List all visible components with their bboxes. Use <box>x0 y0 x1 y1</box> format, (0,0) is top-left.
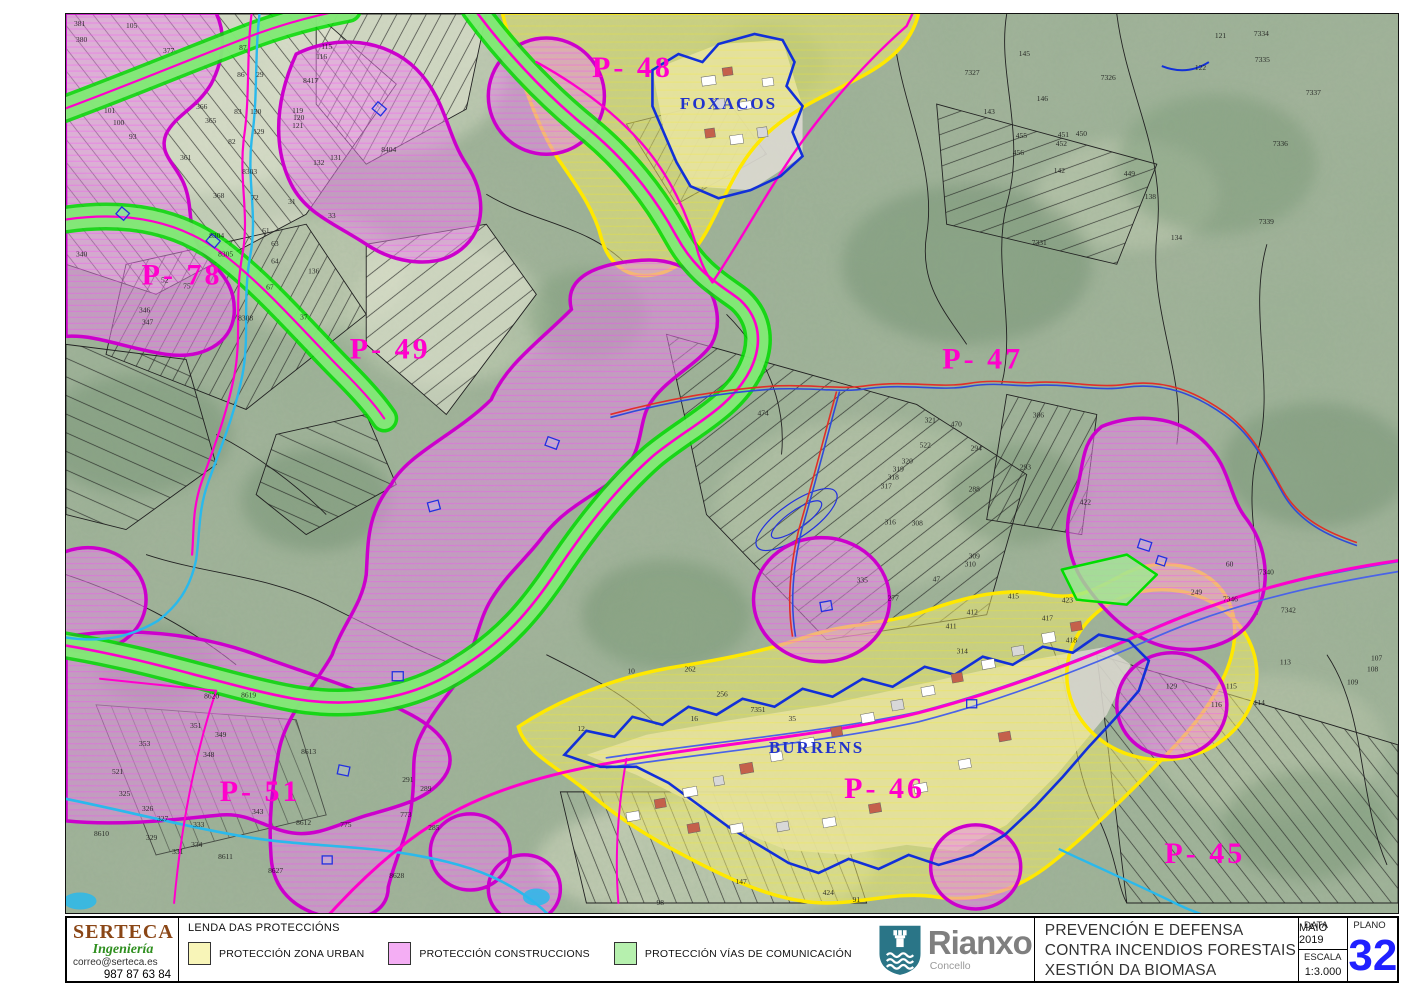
parcel-number: 8620 <box>204 692 219 701</box>
parcel-number: 129 <box>1166 682 1177 691</box>
parcel-number: 449 <box>1124 169 1135 178</box>
parcel-number: 417 <box>1042 614 1053 623</box>
parcel-number: 147 <box>736 877 747 886</box>
region-label: FOXACOS <box>680 94 777 113</box>
map-canvas: 3813801053771011009387298683130129823653… <box>66 14 1398 913</box>
parcel-number: 349 <box>215 730 226 739</box>
parcel-number: 60 <box>1226 560 1234 569</box>
plano-box: PLANO 32 <box>1347 918 1397 981</box>
parcel-number: 61 <box>262 226 270 235</box>
parcel-number: 262 <box>684 665 695 674</box>
parcel-number: 134 <box>1171 233 1182 242</box>
parcel-number: 7346 <box>1223 595 1238 604</box>
parcel-number: 256 <box>716 690 727 699</box>
parcel-number: 452 <box>1056 139 1067 148</box>
data-row: DATA MAIO 2019 <box>1299 918 1347 950</box>
parcel-number: 143 <box>984 107 995 116</box>
parcel-number: 87 <box>239 43 247 52</box>
parcel-number: 132 <box>313 158 324 167</box>
region-label: BURRENS <box>769 738 864 757</box>
parcel-number: 318 <box>888 473 899 482</box>
legend-label: PROTECCIÓN ZONA URBAN <box>219 948 364 960</box>
parcel-number: 316 <box>885 518 896 527</box>
parcel-number: 325 <box>119 789 130 798</box>
parcel-number: 8619 <box>241 691 256 700</box>
parcel-number: 365 <box>205 116 216 125</box>
parcel-number: 105 <box>126 21 137 30</box>
legend: LENDA DAS PROTECCIÓNS PROTECCIÓN ZONA UR… <box>179 918 876 981</box>
parcel-number: 415 <box>1008 592 1019 601</box>
parcel-number: 91 <box>853 895 861 904</box>
parcel-number: 293 <box>1020 463 1031 472</box>
parcel-number: 456 <box>1013 148 1024 157</box>
plan-sheet: 3813801053771011009387298683130129823653… <box>0 0 1414 1000</box>
parcel-number: 418 <box>1066 636 1077 645</box>
project-title-line1: PREVENCIÓN E DEFENSA <box>1045 921 1296 941</box>
legend-item: PROTECCIÓN ZONA URBAN <box>188 942 364 965</box>
parcel-number: 455 <box>1016 131 1027 140</box>
rianxo-shield-icon <box>878 924 922 976</box>
parcel-number: 348 <box>203 750 214 759</box>
parcel-number: 317 <box>881 482 892 491</box>
legend-title: LENDA DAS PROTECCIÓNS <box>188 922 876 934</box>
parcel-number: 29 <box>256 70 264 79</box>
parcel-number: 72 <box>251 193 259 202</box>
parcel-number: 380 <box>76 35 87 44</box>
parcel-number: 108 <box>1367 665 1378 674</box>
region-label: P- 46 <box>844 772 925 805</box>
parcel-number: 249 <box>1191 588 1202 597</box>
parcel-number: 470 <box>951 419 962 428</box>
parcel-number: 366 <box>196 102 207 111</box>
legend-swatch <box>388 942 411 965</box>
parcel-number: 7339 <box>1259 217 1274 226</box>
region-label: P- 49 <box>350 332 431 365</box>
escala-value: 1:3.000 <box>1305 966 1342 978</box>
parcel-number: 422 <box>1080 498 1091 507</box>
parcel-number: 7336 <box>1273 139 1288 148</box>
parcel-number: 343 <box>252 807 263 816</box>
parcel-number: 33 <box>328 211 336 220</box>
rianxo-name: Rianxo <box>928 928 1032 958</box>
parcel-number: 7342 <box>1281 606 1296 615</box>
parcel-number: 377 <box>163 46 174 55</box>
parcel-number: 411 <box>946 622 957 631</box>
parcel-number: 115 <box>1226 682 1237 691</box>
parcel-number: 451 <box>1058 130 1069 139</box>
parcel-number: 8303 <box>242 167 257 176</box>
legend-item: PROTECCIÓN VÍAS DE COMUNICACIÓN <box>614 942 852 965</box>
parcel-number: 361 <box>180 153 191 162</box>
parcel-number: 423 <box>1062 596 1073 605</box>
parcel-number: 306 <box>1033 410 1044 419</box>
parcel-number: 113 <box>1280 658 1291 667</box>
project-title: PREVENCIÓN E DEFENSA CONTRA INCENDIOS FO… <box>1034 918 1298 981</box>
parcel-number: 331 <box>172 847 183 856</box>
parcel-number: 424 <box>823 888 834 897</box>
parcel-number: 8610 <box>94 829 109 838</box>
parcel-number: 321 <box>925 415 936 424</box>
parcel-number: 93 <box>129 132 137 141</box>
project-title-line3: XESTIÓN DA BIOMASA <box>1045 961 1296 981</box>
region-label: P- 78 <box>142 258 223 291</box>
escala-label: ESCALA <box>1304 952 1342 963</box>
parcel-number: 347 <box>142 317 153 326</box>
title-block: SERTECA Ingeniería correo@serteca.es 987… <box>65 916 1399 983</box>
parcel-number: 289 <box>420 784 431 793</box>
parcel-number: 412 <box>967 608 978 617</box>
parcel-number: 7326 <box>1101 73 1116 82</box>
parcel-number: 10 <box>627 667 635 676</box>
parcel-number: 8417 <box>303 76 318 85</box>
parcel-number: 8627 <box>268 866 283 875</box>
parcel-number: 7340 <box>1259 568 1274 577</box>
parcel-number: 314 <box>957 647 968 656</box>
parcel-number: 474 <box>758 408 769 417</box>
parcel-number: 7331 <box>1032 238 1047 247</box>
legend-label: PROTECCIÓN VÍAS DE COMUNICACIÓN <box>645 948 852 960</box>
parcel-number: 82 <box>228 137 236 146</box>
plano-label: PLANO <box>1353 920 1392 931</box>
parcel-number: 98 <box>656 898 664 907</box>
parcel-number: 8305 <box>218 249 233 258</box>
parcel-number: 8308 <box>238 313 253 322</box>
parcel-number: 291 <box>402 775 413 784</box>
parcel-number: 351 <box>190 721 201 730</box>
parcel-number: 277 <box>888 594 899 603</box>
parcel-number: 67 <box>266 282 274 291</box>
parcel-number: 63 <box>271 239 279 248</box>
parcel-number: 329 <box>146 833 157 842</box>
parcel-number: 37 <box>300 312 308 321</box>
region-label: P- 48 <box>592 51 673 84</box>
parcel-number: 142 <box>1054 166 1065 175</box>
parcel-number: 773 <box>400 810 411 819</box>
parcel-number: 101 <box>104 106 115 115</box>
meta-box: DATA MAIO 2019 ESCALA 1:3.000 <box>1298 918 1347 981</box>
parcel-number: 353 <box>139 739 150 748</box>
parcel-number: 7351 <box>751 705 766 714</box>
parcel-number: 86 <box>237 70 245 79</box>
serteca-subtitle: Ingeniería <box>73 942 173 957</box>
parcel-number: 346 <box>139 305 150 314</box>
parcel-number: 129 <box>253 127 264 136</box>
region-label: P- 51 <box>220 775 301 808</box>
parcel-number: 294 <box>971 443 982 452</box>
parcel-number: 146 <box>1037 94 1048 103</box>
serteca-name: SERTECA <box>73 922 173 942</box>
escala-row: ESCALA 1:3.000 <box>1299 950 1347 981</box>
parcel-number: 521 <box>112 767 123 776</box>
parcel-number: 121 <box>292 121 303 130</box>
parcel-number: 115 <box>321 42 332 51</box>
parcel-number: 310 <box>965 560 976 569</box>
parcel-number: 327 <box>157 814 168 823</box>
parcel-number: 114 <box>1254 698 1265 707</box>
parcel-number: 340 <box>76 249 87 258</box>
parcel-number: 288 <box>969 485 980 494</box>
parcel-number: 121 <box>1215 31 1226 40</box>
project-title-line2: CONTRA INCENDIOS FORESTAIS <box>1045 941 1296 961</box>
parcel-number: 8628 <box>389 871 404 880</box>
parcel-number: 131 <box>330 153 341 162</box>
parcel-number: 333 <box>193 820 204 829</box>
parcel-number: 31 <box>288 197 296 206</box>
parcel-number: 83 <box>234 107 242 116</box>
data-value: MAIO 2019 <box>1299 922 1341 946</box>
parcel-number: 109 <box>1347 678 1358 687</box>
serteca-email: correo@serteca.es <box>73 957 173 969</box>
parcel-number: 8404 <box>381 145 396 154</box>
plano-number: 32 <box>1348 932 1397 980</box>
legend-item: PROTECCIÓN CONSTRUCCIONS <box>388 942 589 965</box>
parcel-number: 107 <box>1371 654 1382 663</box>
parcel-number: 450 <box>1076 129 1087 138</box>
parcel-number: 381 <box>74 19 85 28</box>
parcel-number: 116 <box>1211 700 1222 709</box>
parcel-number: 8613 <box>301 747 316 756</box>
parcel-number: 12 <box>577 724 585 733</box>
legend-swatch <box>188 942 211 965</box>
rianxo-subtitle: Concello <box>930 960 1032 972</box>
parcel-number: 308 <box>912 519 923 528</box>
parcel-number: 47 <box>933 575 941 584</box>
serteca-logo: SERTECA Ingeniería correo@serteca.es 987… <box>67 918 179 981</box>
parcel-number: 7335 <box>1255 55 1270 64</box>
region-label: P- 45 <box>1164 837 1245 870</box>
parcel-number: 64 <box>271 256 279 265</box>
parcel-number: 138 <box>1145 192 1156 201</box>
parcel-number: 285 <box>428 823 439 832</box>
parcel-number: 130 <box>250 107 261 116</box>
legend-label: PROTECCIÓN CONSTRUCCIONS <box>419 948 589 960</box>
serteca-phone: 987 87 63 84 <box>73 969 173 982</box>
parcel-number: 136 <box>308 266 319 275</box>
parcel-number: 8304 <box>209 231 224 240</box>
legend-items: PROTECCIÓN ZONA URBANPROTECCIÓN CONSTRUC… <box>188 942 876 965</box>
parcel-number: 368 <box>213 191 224 200</box>
parcel-number: 122 <box>1195 63 1206 72</box>
parcel-number: 7337 <box>1306 88 1321 97</box>
parcel-number: 335 <box>857 576 868 585</box>
parcel-number: 16 <box>690 714 698 723</box>
parcel-number: 35 <box>789 714 797 723</box>
map-frame: 3813801053771011009387298683130129823653… <box>65 13 1399 914</box>
parcel-number: 326 <box>142 804 153 813</box>
region-label: P- 47 <box>942 342 1023 375</box>
parcel-number: 522 <box>920 440 931 449</box>
parcel-number: 7327 <box>965 68 980 77</box>
parcel-number: 116 <box>316 52 327 61</box>
parcel-number: 8611 <box>218 852 233 861</box>
parcel-number: 8612 <box>296 818 311 827</box>
legend-swatch <box>614 942 637 965</box>
rianxo-logo: Rianxo Concello <box>876 918 1034 981</box>
parcel-number: 334 <box>191 840 202 849</box>
parcel-number: 775 <box>340 820 351 829</box>
parcel-number: 100 <box>113 118 124 127</box>
parcel-number: 7334 <box>1254 29 1269 38</box>
parcel-number: 145 <box>1019 49 1030 58</box>
